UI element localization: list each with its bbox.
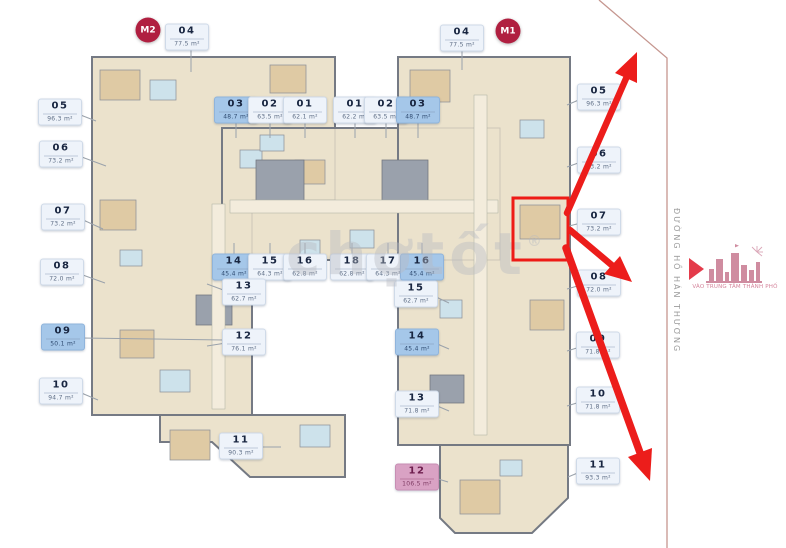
promo-arrow-line [570,230,614,267]
firework-icon [752,246,763,256]
floorplan-image: 0477.5 m²0596.3 m²0673.2 m²0773.2 m²0872… [0,0,786,548]
direction-arrow-icon [689,258,704,280]
promo-arrow-line [566,248,643,461]
highlighted-unit-box [513,198,568,260]
city-skyline-icon [706,244,763,283]
promo-arrow-head [628,448,652,481]
annotation-layer [0,0,786,548]
promo-arrow-line [567,74,628,213]
